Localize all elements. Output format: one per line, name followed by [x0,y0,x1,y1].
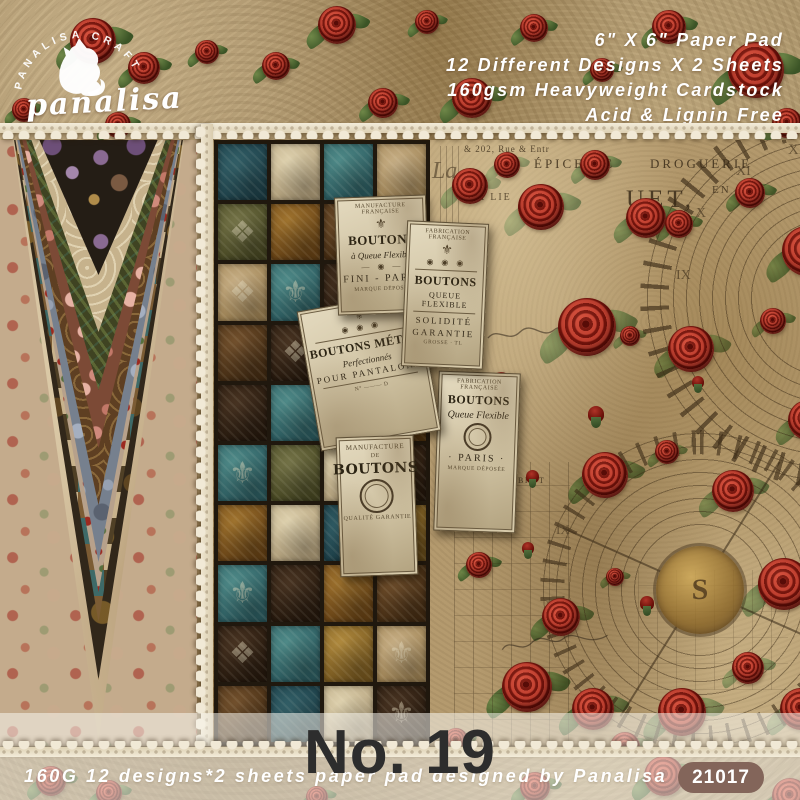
paper-pad-cover: PANALISA CRAFT panalisa 6" X 6" Paper Pa… [0,0,800,800]
sku-badge: 21017 [678,762,764,793]
product-info: 6" X 6" Paper Pad 12 Different Designs X… [446,28,784,128]
rose-icon [732,652,764,684]
grid-tile [271,445,320,501]
rose-icon [620,326,640,346]
card-title: BOUTONS [414,273,477,291]
rose-icon [582,452,628,498]
rose-icon [782,226,800,276]
grid-tile [324,144,373,200]
grid-tile [218,385,267,441]
rose-icon [760,308,786,334]
rose-icon [665,210,693,238]
grid-tile [218,505,267,561]
card-subtitle: Queue Flexible [447,409,509,422]
card-line: · PARIS · [448,452,505,465]
rose-icon [735,178,765,208]
rule [414,311,475,315]
medallion-row: ◉ ◉ ◉ [426,257,466,268]
paper-stack-panel [0,140,197,746]
grid-tile [218,325,267,381]
card-footer: QUALITÉ GARANTIE [343,514,411,522]
grid-tile [271,144,320,200]
grid-tile [271,626,320,682]
rose-icon [655,440,679,464]
card-header: FABRICATION FRANÇAISE [443,378,515,393]
grid-tile [271,204,320,260]
grid-tile: ❖ [218,264,267,320]
card-line: GARANTIE [412,327,474,340]
card-title: BOUTONS [448,392,510,409]
product-info-line: 160gsm Heavyweight Cardstock [446,78,784,103]
rosebud-icon [526,470,539,483]
medallion-icon [463,423,492,452]
rose-icon [758,558,800,610]
grid-tile [324,626,373,682]
medallion-icon [359,478,394,513]
rosebud-icon [640,596,654,610]
tile-ornament-icon: ⚜ [377,626,426,682]
product-info-line: 12 Different Designs X 2 Sheets [446,53,784,78]
card-title: BOUTONS [333,460,419,479]
label-card-paris: FABRICATION FRANÇAISE BOUTONS Queue Flex… [433,371,521,534]
tile-ornament-icon: ❖ [218,204,267,260]
rose-icon [580,150,610,180]
rose-icon [518,184,564,230]
brand-logo: PANALISA CRAFT panalisa [6,0,166,140]
grid-tile [218,144,267,200]
rose-icon [606,568,624,586]
card-header: MANUFACTURE FRANÇAISE [339,202,421,217]
grid-tile: ⚜ [218,445,267,501]
rose-icon [452,168,488,204]
ornament-row: — ◉ — [361,261,403,271]
grid-tile [271,565,320,621]
lace-trim-vertical [196,124,213,746]
tile-ornament-icon: ❖ [218,264,267,320]
rosebud-icon [692,376,704,388]
rose-icon [626,198,666,238]
rose-icon [788,400,800,440]
label-card-solidite: FABRICATION FRANÇAISE ⚜ ◉ ◉ ◉ BOUTONS QU… [401,220,489,369]
card-header: MANUFACTURE [346,442,405,452]
rose-icon [502,662,552,712]
tile-ornament-icon: ❖ [218,626,267,682]
tile-ornament-icon: ⚜ [218,565,267,621]
rosebud-icon [588,406,604,422]
lace-trim-top [0,123,800,139]
crest-icon: ⚜ [441,243,453,256]
card-footer: MARQUE DÉPOSÉE [447,465,505,473]
grid-tile [271,505,320,561]
rose-icon [668,326,714,372]
card-mid: DE [371,453,380,459]
card-footer: GROSSE · TL [423,339,462,347]
grid-tile: ⚜ [218,565,267,621]
grid-tile: ❖ [218,626,267,682]
grid-tile [377,144,426,200]
rose-icon [712,470,754,512]
rule [415,269,476,273]
card-subtitle: QUEUE FLEXIBLE [408,289,481,310]
grid-tile: ⚜ [377,626,426,682]
label-card-manufacture: MANUFACTURE DE BOUTONS QUALITÉ GARANTIE [336,435,419,578]
rosebud-icon [522,542,534,554]
grid-tile: ❖ [218,204,267,260]
tile-ornament-icon: ⚜ [218,445,267,501]
card-header: FABRICATION FRANÇAISE [411,227,483,242]
rose-icon [494,152,520,178]
rose-icon [558,298,616,356]
product-info-line: 6" X 6" Paper Pad [446,28,784,53]
crest-icon: ⚜ [375,217,387,230]
rose-icon [466,552,492,578]
card-subtitle: à Queue Flexible [351,249,413,261]
sku-value: 21017 [692,767,750,789]
rose-icon [542,598,580,636]
card-line: SOLIDITÉ [415,315,472,327]
